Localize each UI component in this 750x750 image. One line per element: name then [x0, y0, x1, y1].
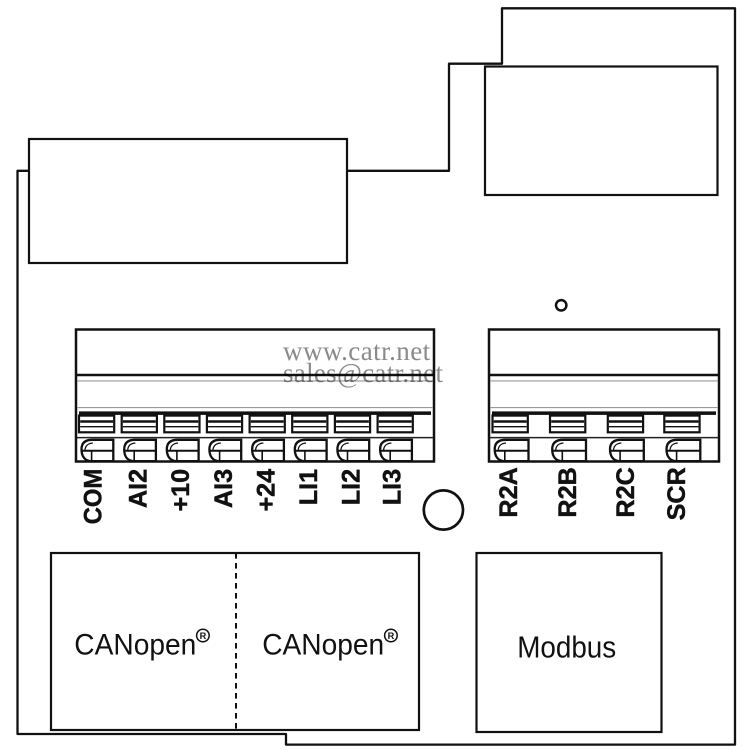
svg-text:AI2: AI2: [125, 469, 153, 508]
svg-text:AI3: AI3: [210, 469, 238, 508]
svg-text:R2B: R2B: [554, 467, 582, 517]
svg-text:+10: +10: [167, 469, 195, 512]
svg-text:R: R: [200, 631, 207, 641]
svg-text:R2C: R2C: [612, 467, 640, 517]
svg-text:LI2: LI2: [337, 469, 365, 505]
svg-text:R2A: R2A: [495, 467, 523, 517]
svg-text:CANopen: CANopen: [262, 630, 384, 662]
svg-text:LI3: LI3: [379, 469, 407, 505]
svg-text:+24: +24: [252, 469, 280, 512]
svg-text:R: R: [388, 631, 395, 641]
svg-text:LI1: LI1: [295, 469, 323, 505]
svg-text:SCR: SCR: [663, 467, 691, 520]
svg-text:CANopen: CANopen: [74, 630, 196, 662]
svg-text:COM: COM: [80, 469, 108, 525]
svg-text:sales@catr.net: sales@catr.net: [283, 358, 443, 388]
svg-text:Modbus: Modbus: [517, 629, 616, 664]
